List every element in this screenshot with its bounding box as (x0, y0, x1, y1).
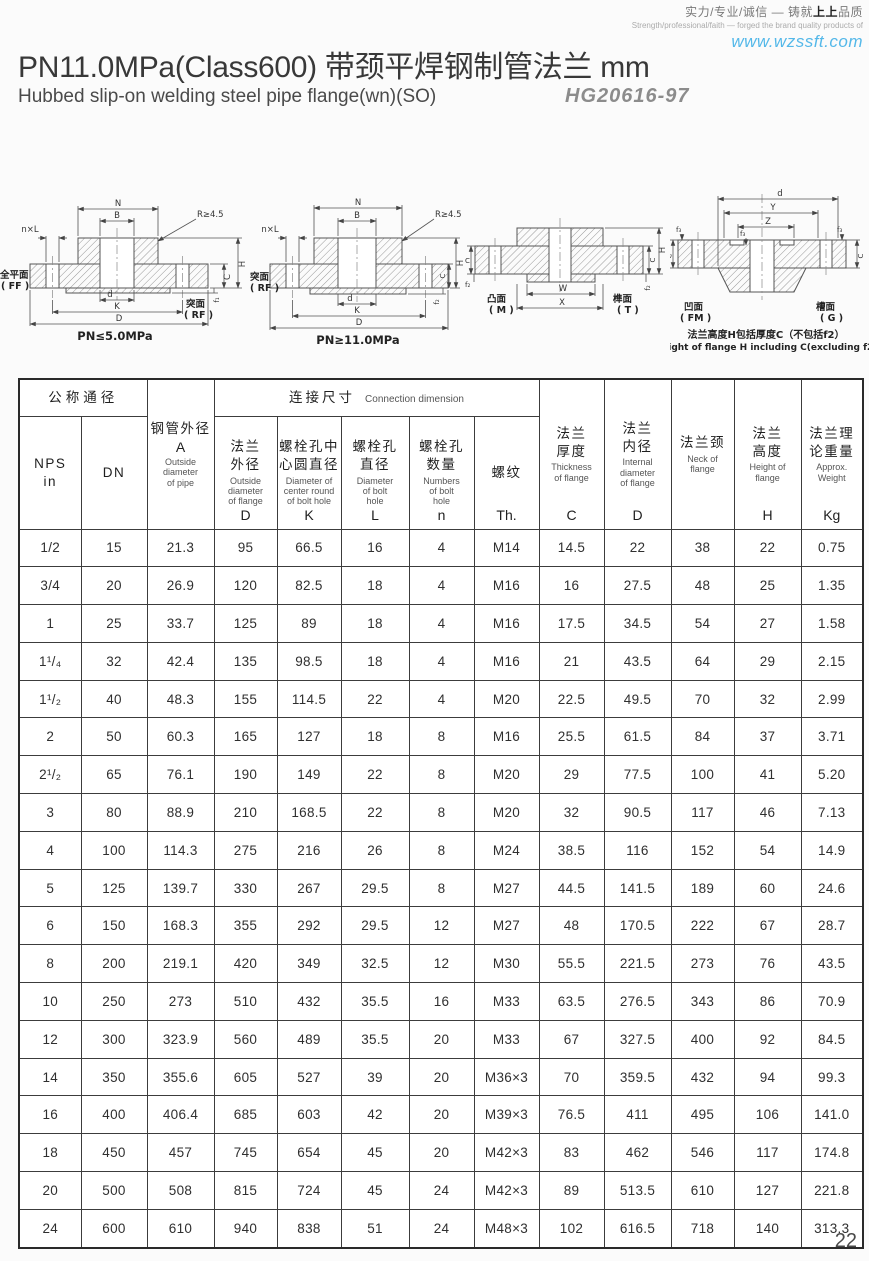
col-label-cn: 法兰 高度 (735, 425, 801, 460)
dim-label: C (649, 257, 657, 262)
col-header-bolt-hole-count: 螺栓孔 数量 Numbers of bolt hole n (409, 416, 474, 529)
table-cell: 20 (409, 1134, 474, 1172)
table-row: 25060.3165127188M1625.561.584373.71 (19, 718, 863, 756)
table-cell: 88.9 (147, 794, 214, 832)
table-cell: 838 (277, 1209, 341, 1247)
table-cell: 685 (214, 1096, 277, 1134)
table-cell: 276.5 (604, 983, 671, 1021)
table-cell: 65 (81, 756, 147, 794)
catalog-page: 实力/专业/诚信 — 铸就上上品质 Strength/professional/… (0, 0, 869, 1261)
table-header: 公称通径 钢管外径 A Outside diameter of pipe 连接尺… (19, 379, 863, 529)
table-cell: 63.5 (539, 983, 604, 1021)
col-label-en: Outside diameter of pipe (148, 457, 214, 488)
table-cell: 120 (214, 567, 277, 605)
table-cell: 457 (147, 1134, 214, 1172)
table-cell: 14.9 (801, 831, 863, 869)
table-cell: 718 (671, 1209, 734, 1247)
table-cell: 273 (671, 945, 734, 983)
table-cell: 42.4 (147, 642, 214, 680)
table-cell: 21 (539, 642, 604, 680)
table-cell: 400 (81, 1096, 147, 1134)
table-cell: 510 (214, 983, 277, 1021)
table-cell: 94 (734, 1058, 801, 1096)
table-cell: 18 (341, 718, 409, 756)
table-cell: M39×3 (474, 1096, 539, 1134)
dim-label: Y (769, 203, 776, 213)
table-cell: 76.5 (539, 1096, 604, 1134)
col-label-en: Height of flange (735, 462, 801, 483)
table-cell: 2¹/₂ (19, 756, 81, 794)
table-cell: 432 (671, 1058, 734, 1096)
table-cell: 12 (409, 907, 474, 945)
table-cell: M16 (474, 567, 539, 605)
dim-label: n×L (261, 225, 279, 235)
table-cell: 500 (81, 1172, 147, 1210)
col-label-cn: 法兰 厚度 (540, 425, 604, 460)
table-cell: 8 (409, 756, 474, 794)
table-cell: 90.5 (604, 794, 671, 832)
dim-label: H (658, 247, 668, 253)
table-row: 12300323.956048935.520M3367327.54009284.… (19, 1020, 863, 1058)
table-cell: 24 (409, 1209, 474, 1247)
figure-caption: PN≤5.0MPa (77, 329, 152, 343)
table-cell: 42 (341, 1096, 409, 1134)
table-cell: 1¹/₄ (19, 642, 81, 680)
figure-caption: PN≥11.0MPa (316, 333, 399, 347)
table-cell: 343 (671, 983, 734, 1021)
slogan-en: Strength/professional/faith — forged the… (632, 21, 863, 30)
table-cell: 2.99 (801, 680, 863, 718)
table-cell: 165 (214, 718, 277, 756)
table-cell: 84 (671, 718, 734, 756)
table-cell: 20 (409, 1058, 474, 1096)
dim-label: B (354, 211, 360, 221)
figure-flange-rf-high-pn: N B R≥4.5 n×L d K D H C f₂ 突面 ( RF ) PN≥… (250, 188, 465, 353)
dim-label: K (114, 302, 120, 312)
table-cell: 37 (734, 718, 801, 756)
dim-label: C (857, 253, 865, 258)
table-cell: 2.15 (801, 642, 863, 680)
website-link[interactable]: www.wzssft.com (632, 32, 863, 52)
table-cell: 4 (19, 831, 81, 869)
group-header-connection-dimension: 连接尺寸 Connection dimension (214, 379, 539, 416)
table-cell: 39 (341, 1058, 409, 1096)
table-cell: 44.5 (539, 869, 604, 907)
table-cell: 141.0 (801, 1096, 863, 1134)
group-label-cn: 连接尺寸 (289, 389, 355, 407)
table-cell: 12 (409, 945, 474, 983)
table-cell: 127 (734, 1172, 801, 1210)
col-header-bolt-circle: 螺栓孔中 心圆直径 Diameter of center round of bo… (277, 416, 341, 529)
table-cell: 35.5 (341, 983, 409, 1021)
col-label-en: Diameter of bolt hole (342, 476, 409, 507)
face-label-m: 凸面 (487, 294, 507, 305)
table-cell: 7.13 (801, 794, 863, 832)
table-cell: 462 (604, 1134, 671, 1172)
col-header-flange-od: 法兰 外径 Outside diameter of flange D (214, 416, 277, 529)
table-cell: 222 (671, 907, 734, 945)
face-label-t: 榫面 (612, 293, 633, 305)
table-cell: 174.8 (801, 1134, 863, 1172)
col-symbol: D (605, 507, 671, 523)
table-cell: 20 (409, 1096, 474, 1134)
table-cell: 25.5 (539, 718, 604, 756)
table-cell: 610 (671, 1172, 734, 1210)
col-label-cn: 螺纹 (475, 464, 539, 482)
table-cell: 18 (341, 642, 409, 680)
face-label-ff: 全平面 (0, 269, 29, 281)
table-cell: 8 (409, 718, 474, 756)
table-cell: 55.5 (539, 945, 604, 983)
dim-label: n×L (21, 225, 39, 235)
table-cell: M16 (474, 642, 539, 680)
table-cell: 489 (277, 1020, 341, 1058)
table-cell: 495 (671, 1096, 734, 1134)
table-cell: 26 (341, 831, 409, 869)
table-cell: 350 (81, 1058, 147, 1096)
table-cell: 323.9 (147, 1020, 214, 1058)
dim-label: H (456, 260, 465, 266)
table-cell: M33 (474, 1020, 539, 1058)
table-cell: 560 (214, 1020, 277, 1058)
table-cell: 14.5 (539, 529, 604, 567)
col-header-height: 法兰 高度 Height of flange H (734, 379, 801, 529)
col-symbol: n (410, 507, 474, 523)
page-subtitle: Hubbed slip-on welding steel pipe flange… (18, 86, 436, 108)
table-cell: 38 (671, 529, 734, 567)
table-cell: 70 (671, 680, 734, 718)
table-row: 2¹/₂6576.1190149228M202977.5100415.20 (19, 756, 863, 794)
table-cell: 67 (539, 1020, 604, 1058)
table-cell: M24 (474, 831, 539, 869)
table-cell: 190 (214, 756, 277, 794)
table-cell: 99.3 (801, 1058, 863, 1096)
table-cell: 406.4 (147, 1096, 214, 1134)
table-cell: 100 (671, 756, 734, 794)
table-cell: 117 (734, 1134, 801, 1172)
table-cell: 16 (341, 529, 409, 567)
table-cell: 114.3 (147, 831, 214, 869)
dim-label: C (670, 253, 674, 258)
table-cell: 116 (604, 831, 671, 869)
table-cell: 29 (734, 642, 801, 680)
dim-label: f₃ (676, 226, 681, 234)
table-cell: 292 (277, 907, 341, 945)
flange-spec-table: 公称通径 钢管外径 A Outside diameter of pipe 连接尺… (18, 378, 864, 1249)
table-cell: 125 (214, 605, 277, 643)
table-cell: 25 (81, 605, 147, 643)
dim-label: N (115, 199, 121, 209)
table-cell: 34.5 (604, 605, 671, 643)
table-cell: M48×3 (474, 1209, 539, 1247)
table-row: 1¹/₂4048.3155114.5224M2022.549.570322.99 (19, 680, 863, 718)
table-cell: 95 (214, 529, 277, 567)
table-cell: 28.7 (801, 907, 863, 945)
table-row: 16400406.46856034220M39×376.541149510614… (19, 1096, 863, 1134)
table-cell: 654 (277, 1134, 341, 1172)
face-label-g: 槽面 (816, 301, 836, 313)
table-cell: 349 (277, 945, 341, 983)
table-cell: 267 (277, 869, 341, 907)
table-cell: 20 (19, 1172, 81, 1210)
col-label-cn: NPS in (20, 455, 81, 490)
table-cell: 5 (19, 869, 81, 907)
table-cell: 67 (734, 907, 801, 945)
table-cell: 127 (277, 718, 341, 756)
table-cell: M42×3 (474, 1134, 539, 1172)
table-cell: 8 (19, 945, 81, 983)
table-cell: 4 (409, 605, 474, 643)
table-cell: 3 (19, 794, 81, 832)
table-cell: 300 (81, 1020, 147, 1058)
col-symbol: C (540, 507, 604, 523)
table-cell: 29.5 (341, 869, 409, 907)
standard-number: HG20616-97 (565, 85, 690, 108)
group-label: 公称通径 (20, 389, 147, 407)
table-cell: 32 (734, 680, 801, 718)
table-cell: 16 (19, 1096, 81, 1134)
slogan-cn-bold: 上上 (813, 5, 838, 19)
col-label-cn: 法兰 内径 (605, 420, 671, 455)
table-cell: 22 (341, 794, 409, 832)
table-cell: 77.5 (604, 756, 671, 794)
table-cell: 8 (409, 831, 474, 869)
table-row: 3/42026.912082.5184M161627.548251.35 (19, 567, 863, 605)
table-cell: 200 (81, 945, 147, 983)
table-cell: 16 (539, 567, 604, 605)
table-row: 12533.712589184M1617.534.554271.58 (19, 605, 863, 643)
table-cell: 275 (214, 831, 277, 869)
table-cell: M27 (474, 907, 539, 945)
table-cell: 603 (277, 1096, 341, 1134)
table-row: 6150168.335529229.512M2748170.52226728.7 (19, 907, 863, 945)
table-cell: 4 (409, 567, 474, 605)
table-cell: 41 (734, 756, 801, 794)
flange-cross-section (270, 238, 448, 294)
group-header-nominal-diameter: 公称通径 (19, 379, 147, 416)
table-cell: 82.5 (277, 567, 341, 605)
table-cell: 60.3 (147, 718, 214, 756)
col-header-dn: DN (81, 416, 147, 529)
table-cell: 76.1 (147, 756, 214, 794)
col-header-weight: 法兰理 论重量 Approx. Weight Kg (801, 379, 863, 529)
table-cell: 150 (81, 907, 147, 945)
table-cell: 24 (409, 1172, 474, 1210)
dim-label: f₁ (213, 297, 221, 302)
page-number: 22 (835, 1230, 857, 1253)
dim-label: N (355, 198, 361, 208)
table-cell: 149 (277, 756, 341, 794)
table-cell: 43.5 (801, 945, 863, 983)
table-cell: 940 (214, 1209, 277, 1247)
drawings-strip: N B R≥4.5 n×L d K D H C f₁ 全平面 ( FF ) 突面… (0, 188, 869, 353)
table-cell: 221.8 (801, 1172, 863, 1210)
col-symbol: H (735, 507, 801, 523)
table-cell: 18 (19, 1134, 81, 1172)
table-cell: 35.5 (341, 1020, 409, 1058)
table-cell: 400 (671, 1020, 734, 1058)
table-cell: 92 (734, 1020, 801, 1058)
group-label-en: Connection dimension (365, 394, 464, 406)
col-header-neck: 法兰颈 Neck of flange (671, 379, 734, 529)
col-header-nps: NPS in (19, 416, 81, 529)
table-cell: 18 (341, 605, 409, 643)
table-cell: 140 (734, 1209, 801, 1247)
table-cell: 16 (409, 983, 474, 1021)
col-symbol: Th. (475, 507, 539, 523)
table-cell: 51 (341, 1209, 409, 1247)
face-label-rf-code: ( RF ) (184, 310, 213, 321)
table-cell: 38.5 (539, 831, 604, 869)
table-cell: 20 (409, 1020, 474, 1058)
dim-label: f₂ (465, 281, 470, 289)
slogan-cn: 实力/专业/诚信 — 铸就上上品质 (632, 3, 863, 20)
table-cell: 450 (81, 1134, 147, 1172)
table-cell: 114.5 (277, 680, 341, 718)
table-cell: 54 (671, 605, 734, 643)
col-label-cn: DN (82, 464, 147, 482)
table-cell: M20 (474, 756, 539, 794)
table-cell: 80 (81, 794, 147, 832)
table-cell: 27.5 (604, 567, 671, 605)
table-cell: 22 (734, 529, 801, 567)
table-cell: 89 (539, 1172, 604, 1210)
table-cell: 616.5 (604, 1209, 671, 1247)
table-cell: 216 (277, 831, 341, 869)
table-cell: 250 (81, 983, 147, 1021)
dim-label: C (465, 257, 470, 265)
table-row: 4100114.3275216268M2438.51161525414.9 (19, 831, 863, 869)
table-cell: 4 (409, 680, 474, 718)
table-cell: 64 (671, 642, 734, 680)
figure-flange-ff-rf: N B R≥4.5 n×L d K D H C f₁ 全平面 ( FF ) 突面… (0, 188, 250, 353)
col-label-en: Approx. Weight (802, 462, 863, 483)
figure-flange-m-t: C f₂ W X H C f₂ 凸面 ( M ) 榫面 ( T ) (465, 188, 670, 353)
table-cell: 48 (671, 567, 734, 605)
slogan-cn-pre: 实力/专业/诚信 — 铸就 (685, 5, 813, 19)
table-cell: 84.5 (801, 1020, 863, 1058)
table-cell: M30 (474, 945, 539, 983)
table-cell: 48.3 (147, 680, 214, 718)
table-cell: 1 (19, 605, 81, 643)
table-cell: 135 (214, 642, 277, 680)
table-cell: 54 (734, 831, 801, 869)
table-cell: 1.35 (801, 567, 863, 605)
table-cell: 6 (19, 907, 81, 945)
table-cell: 10 (19, 983, 81, 1021)
col-symbol: L (342, 507, 409, 523)
table-cell: M20 (474, 794, 539, 832)
table-cell: 12 (19, 1020, 81, 1058)
table-cell: 32.5 (341, 945, 409, 983)
table-cell: 170.5 (604, 907, 671, 945)
table-cell: 32 (539, 794, 604, 832)
slogan-cn-post: 品质 (838, 5, 863, 19)
col-header-thickness: 法兰 厚度 Thickness of flange C (539, 379, 604, 529)
table-cell: 327.5 (604, 1020, 671, 1058)
figure-flange-fm-g: d Y Z f₃ f₃ f₃ C C 凹面 ( FM ) 槽面 ( G ) 法兰… (670, 188, 869, 353)
table-cell: M14 (474, 529, 539, 567)
table-cell: 102 (539, 1209, 604, 1247)
table-cell: 4 (409, 642, 474, 680)
col-label-cn: 螺栓孔中 心圆直径 (278, 438, 341, 473)
dim-label: D (116, 314, 123, 324)
face-label-fm: 凹面 (684, 302, 704, 313)
table-cell: 4 (409, 529, 474, 567)
table-cell: 27 (734, 605, 801, 643)
table-cell: 219.1 (147, 945, 214, 983)
dim-label: f₃ (740, 230, 745, 238)
face-label-t-code: ( T ) (617, 305, 639, 316)
table-cell: 420 (214, 945, 277, 983)
dim-label: C (223, 274, 233, 280)
table-cell: 29.5 (341, 907, 409, 945)
table-cell: 168.3 (147, 907, 214, 945)
col-label-en: Internal diameter of flange (605, 457, 671, 488)
dim-label: R≥4.5 (197, 210, 224, 220)
table-cell: 3/4 (19, 567, 81, 605)
col-symbol: D (215, 507, 277, 523)
table-cell: 1¹/₂ (19, 680, 81, 718)
table-cell: 24.6 (801, 869, 863, 907)
col-label-cn: 螺栓孔 直径 (342, 438, 409, 473)
table-row: 38088.9210168.5228M203290.5117467.13 (19, 794, 863, 832)
table-cell: 355 (214, 907, 277, 945)
table-cell: 8 (409, 794, 474, 832)
dim-label: d (347, 294, 352, 304)
col-label-en: Outside diameter of flange (215, 476, 277, 507)
table-cell: 86 (734, 983, 801, 1021)
table-cell: 610 (147, 1209, 214, 1247)
table-cell: 600 (81, 1209, 147, 1247)
table-cell: M27 (474, 869, 539, 907)
col-header-pipe-od: 钢管外径 A Outside diameter of pipe (147, 379, 214, 529)
table-cell: 546 (671, 1134, 734, 1172)
table-cell: 22 (604, 529, 671, 567)
table-row: 1025027351043235.516M3363.5276.53438670.… (19, 983, 863, 1021)
table-cell: 724 (277, 1172, 341, 1210)
table-cell: 83 (539, 1134, 604, 1172)
brand-header: 实力/专业/诚信 — 铸就上上品质 Strength/professional/… (632, 3, 863, 52)
col-symbol: K (278, 507, 341, 523)
col-label-cn: 法兰 外径 (215, 438, 277, 473)
table-cell: 45 (341, 1172, 409, 1210)
table-cell: 15 (81, 529, 147, 567)
table-cell: 66.5 (277, 529, 341, 567)
table-cell: 1.58 (801, 605, 863, 643)
flange-cross-section (30, 238, 208, 293)
table-cell: 25 (734, 567, 801, 605)
table-cell: 40 (81, 680, 147, 718)
table-cell: 117 (671, 794, 734, 832)
table-cell: 106 (734, 1096, 801, 1134)
col-header-thread: 螺纹 Th. (474, 416, 539, 529)
table-cell: 22 (341, 680, 409, 718)
table-cell: 221.5 (604, 945, 671, 983)
table-cell: 26.9 (147, 567, 214, 605)
table-row: 1¹/₄3242.413598.5184M162143.564292.15 (19, 642, 863, 680)
dim-label: X (559, 298, 565, 308)
col-label-cn: 螺栓孔 数量 (410, 438, 474, 473)
face-label-ff-code: ( FF ) (1, 281, 29, 292)
table-cell: 46 (734, 794, 801, 832)
table-cell: 125 (81, 869, 147, 907)
col-label-en: Thickness of flange (540, 462, 604, 483)
table-cell: M16 (474, 605, 539, 643)
flange-cross-section (475, 228, 643, 282)
table-cell: M33 (474, 983, 539, 1021)
table-cell: 5.20 (801, 756, 863, 794)
